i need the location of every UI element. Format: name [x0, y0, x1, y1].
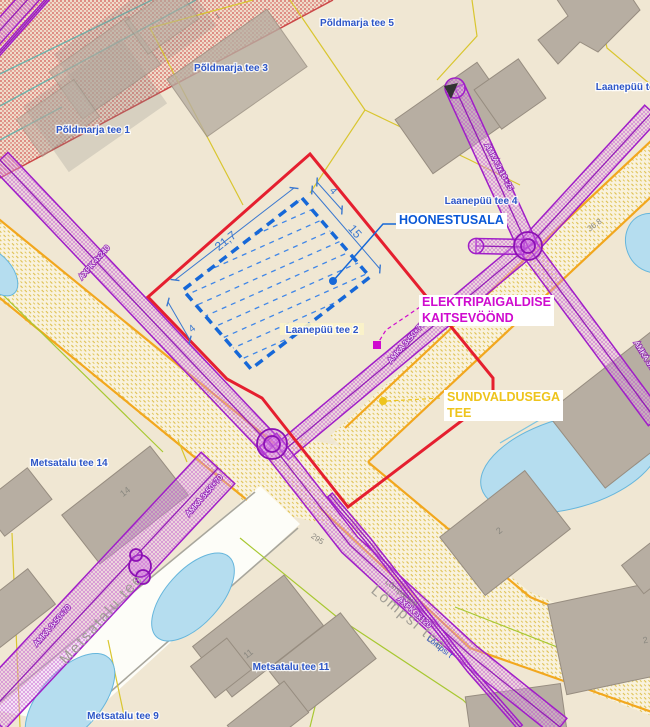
dimension-label: 4: [187, 323, 199, 335]
dimension-tick: [171, 279, 180, 280]
hoonestusala-callout-text: HOONESTUSALA: [399, 213, 504, 229]
hatch-line: [149, 227, 405, 341]
parcel-line: [290, 0, 365, 110]
dimension-line: [317, 182, 342, 210]
street-address-label: Metsatalu tee 11: [253, 662, 330, 673]
hatch-line: [132, 190, 388, 304]
building: [0, 468, 52, 536]
street-address-label: Põldmarja tee 1: [56, 125, 130, 136]
elektri-callout-line1: ELEKTRIPAIGALDISE: [422, 295, 551, 311]
map-canvas[interactable]: AMKA 3x16+25AMKA 3x50+70AMKA 3x50+70AMKA…: [0, 0, 650, 727]
cable-junction: [264, 436, 280, 452]
cable-corridor-cap: [469, 239, 484, 254]
dimension-tick: [380, 265, 381, 274]
dimension-tick: [312, 186, 313, 195]
map-ref-label: 295: [309, 531, 326, 546]
elektripaigaldise-kaitsevoond-callout: ELEKTRIPAIGALDISE KAITSEVÖÖND: [419, 295, 554, 326]
street-address-label: Laanepüü tee 2: [286, 325, 359, 336]
cable-junction: [130, 549, 142, 561]
dimension-tick: [342, 206, 343, 215]
street-address-label: Põldmarja tee 5: [320, 18, 394, 29]
hoonestusala-callout: HOONESTUSALA: [396, 213, 507, 229]
cable-junction: [521, 239, 535, 253]
parcel-line: [310, 110, 365, 193]
street-address-label: Laanepüü tee 4: [445, 196, 518, 207]
dimension-label: 15: [345, 222, 365, 242]
sund-callout-line1: SUNDVALDUSEGA: [447, 390, 560, 406]
dimension-tick: [317, 178, 318, 187]
sund-callout-line2: TEE: [447, 406, 560, 422]
dimension-tick: [290, 187, 299, 188]
sundvaldusega-tee-callout: SUNDVALDUSEGA TEE: [444, 390, 563, 421]
sund-anchor-dot: [379, 397, 387, 405]
elektri-callout-line2: KAITSEVÖÖND: [422, 311, 551, 327]
street-address-label: Laanepüü tee: [596, 82, 650, 93]
building: [548, 581, 650, 694]
building: [538, 0, 640, 64]
elektri-anchor-square: [373, 341, 381, 349]
street-address-label: Metsatalu tee 14: [30, 458, 108, 469]
dimension-tick: [167, 298, 169, 307]
hatch-line: [110, 141, 366, 255]
hatch-line: [116, 153, 372, 267]
map-viewport[interactable]: { "title": "Detail plan map extract", "c…: [0, 0, 650, 727]
street-address-label: Põldmarja tee 3: [194, 63, 268, 74]
street-address-label: Metsatalu tee 9: [87, 711, 159, 722]
